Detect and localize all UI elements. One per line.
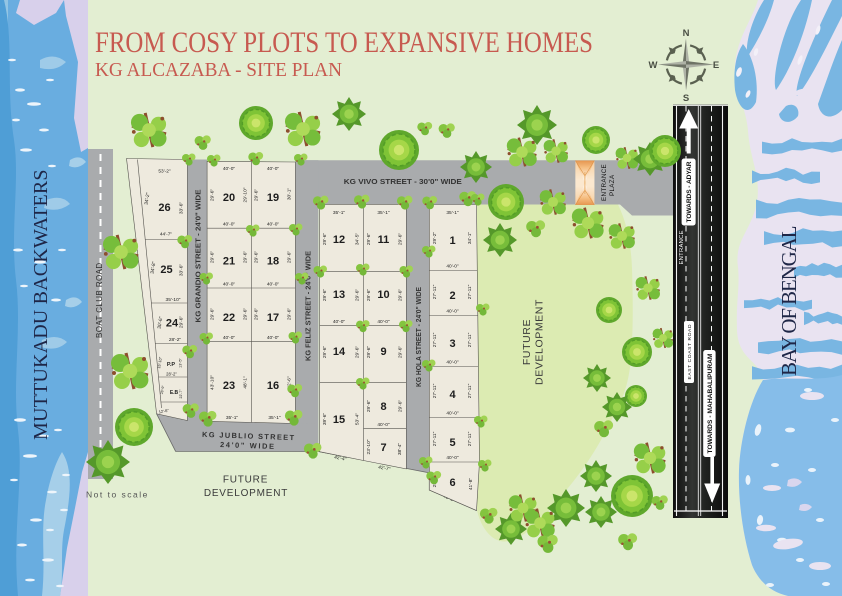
svg-text:40'-0": 40'-0" xyxy=(223,282,236,288)
svg-text:E: E xyxy=(713,60,719,71)
svg-text:13: 13 xyxy=(333,289,345,301)
svg-text:29'-6": 29'-6" xyxy=(254,189,260,202)
svg-text:27'-11": 27'-11" xyxy=(432,431,438,446)
svg-text:27'-11": 27'-11" xyxy=(467,284,473,299)
svg-text:8: 8 xyxy=(380,401,386,413)
svg-text:7: 7 xyxy=(380,442,386,454)
svg-text:23: 23 xyxy=(223,380,235,392)
svg-text:MUTTUKADU BACKWATERS: MUTTUKADU BACKWATERS xyxy=(30,168,52,440)
svg-text:KG ALCAZABA - SITE PLAN: KG ALCAZABA - SITE PLAN xyxy=(95,59,342,81)
svg-text:40'-0": 40'-0" xyxy=(377,319,390,325)
svg-text:41'-8": 41'-8" xyxy=(468,478,474,491)
svg-text:35'-1": 35'-1" xyxy=(268,415,281,421)
svg-text:22: 22 xyxy=(223,312,235,324)
svg-text:29'-6": 29'-6" xyxy=(355,346,361,359)
svg-text:35'-1": 35'-1" xyxy=(377,210,390,216)
svg-text:1: 1 xyxy=(449,235,455,247)
svg-text:4: 4 xyxy=(449,389,456,401)
svg-text:29'-6": 29'-6" xyxy=(322,233,328,246)
svg-text:44'-7": 44'-7" xyxy=(160,232,173,238)
svg-text:53'-4": 53'-4" xyxy=(355,413,361,426)
svg-text:29'-6": 29'-6" xyxy=(254,251,260,264)
svg-text:40'-0": 40'-0" xyxy=(446,455,459,461)
svg-text:29'-6": 29'-6" xyxy=(366,289,372,302)
svg-text:TOWARDS - MAHABALIPURAM: TOWARDS - MAHABALIPURAM xyxy=(707,353,714,454)
svg-text:ENTRANCE: ENTRANCE xyxy=(679,230,685,264)
svg-text:35'-10": 35'-10" xyxy=(166,297,181,303)
svg-text:11: 11 xyxy=(378,234,390,246)
svg-text:22'-7": 22'-7" xyxy=(179,389,183,399)
svg-text:40'-0": 40'-0" xyxy=(223,222,236,228)
svg-text:25: 25 xyxy=(160,264,172,276)
svg-text:P.P: P.P xyxy=(167,362,175,368)
svg-text:26: 26 xyxy=(158,202,170,214)
svg-text:29'-6": 29'-6" xyxy=(179,316,185,329)
svg-text:FROM COSY PLOTS TO EXPANSIVE H: FROM COSY PLOTS TO EXPANSIVE HOMES xyxy=(95,26,593,59)
svg-text:40'-0": 40'-0" xyxy=(446,264,459,270)
svg-text:40'-0": 40'-0" xyxy=(267,335,280,341)
svg-text:40'-0": 40'-0" xyxy=(267,166,280,172)
svg-text:40'-0": 40'-0" xyxy=(333,319,346,325)
svg-text:12: 12 xyxy=(333,234,345,246)
svg-text:38'-4": 38'-4" xyxy=(397,443,403,456)
svg-text:29'-2": 29'-2" xyxy=(432,232,438,245)
svg-text:27'-11": 27'-11" xyxy=(467,431,473,446)
svg-text:PLAZA: PLAZA xyxy=(609,174,616,196)
svg-text:29'-6": 29'-6" xyxy=(355,289,361,302)
svg-text:34'-1": 34'-1" xyxy=(467,232,473,245)
svg-text:29'-6": 29'-6" xyxy=(210,308,216,321)
svg-text:S: S xyxy=(683,93,689,104)
svg-text:48'-1": 48'-1" xyxy=(243,376,249,389)
svg-text:KG GRANDIO STREET - 24'0" WIDE: KG GRANDIO STREET - 24'0" WIDE xyxy=(194,189,203,322)
svg-text:29'-6": 29'-6" xyxy=(210,251,216,264)
svg-text:ENTRANCE: ENTRANCE xyxy=(601,164,608,201)
svg-text:29'-6": 29'-6" xyxy=(254,308,260,321)
svg-text:17: 17 xyxy=(267,312,279,324)
svg-text:29'-6": 29'-6" xyxy=(398,289,404,302)
svg-text:29'-6": 29'-6" xyxy=(210,189,216,202)
svg-text:5: 5 xyxy=(449,437,455,449)
svg-text:35'-1": 35'-1" xyxy=(446,210,459,216)
svg-text:15: 15 xyxy=(333,414,345,426)
svg-text:29'-6": 29'-6" xyxy=(366,346,372,359)
svg-text:29'-6": 29'-6" xyxy=(287,251,293,264)
svg-text:40'-0": 40'-0" xyxy=(446,360,459,366)
svg-text:29'-6": 29'-6" xyxy=(243,308,249,321)
svg-text:KG HOLA STREET - 24'0" WIDE: KG HOLA STREET - 24'0" WIDE xyxy=(414,287,423,387)
svg-text:14: 14 xyxy=(333,346,346,358)
svg-text:40'-0": 40'-0" xyxy=(223,335,236,341)
svg-text:33'-6": 33'-6" xyxy=(179,202,185,215)
svg-text:Not to scale: Not to scale xyxy=(86,490,149,500)
svg-text:27'-11": 27'-11" xyxy=(432,332,438,347)
svg-text:29'-6": 29'-6" xyxy=(322,289,328,302)
svg-text:29'-6": 29'-6" xyxy=(366,233,372,246)
svg-text:E.B: E.B xyxy=(170,390,179,396)
svg-text:23'-10": 23'-10" xyxy=(366,439,372,454)
svg-text:29'-6": 29'-6" xyxy=(398,400,404,413)
svg-text:27'-11": 27'-11" xyxy=(432,383,438,398)
svg-text:27'-11": 27'-11" xyxy=(432,284,438,299)
svg-text:40'-0": 40'-0" xyxy=(377,422,390,428)
svg-text:10: 10 xyxy=(377,289,389,301)
svg-text:29'-10": 29'-10" xyxy=(243,187,249,202)
svg-text:BOAT CLUB ROAD: BOAT CLUB ROAD xyxy=(95,262,104,338)
svg-text:21: 21 xyxy=(223,256,235,268)
svg-text:29'-6": 29'-6" xyxy=(366,400,372,413)
svg-text:29'-6": 29'-6" xyxy=(243,251,249,264)
svg-text:40'-0": 40'-0" xyxy=(223,166,236,172)
svg-text:EAST COAST ROAD: EAST COAST ROAD xyxy=(687,324,693,379)
svg-text:9: 9 xyxy=(380,346,386,358)
svg-text:FUTURE: FUTURE xyxy=(521,319,533,365)
svg-text:30'-1": 30'-1" xyxy=(287,188,293,201)
svg-text:N: N xyxy=(683,28,690,39)
svg-text:33'-6": 33'-6" xyxy=(179,264,185,277)
svg-text:13'-5": 13'-5" xyxy=(179,358,183,368)
svg-text:3: 3 xyxy=(449,338,455,350)
svg-text:29'-6": 29'-6" xyxy=(398,346,404,359)
svg-text:35'-1": 35'-1" xyxy=(333,210,346,216)
svg-text:24'0" WIDE: 24'0" WIDE xyxy=(220,440,274,451)
svg-text:43'-10": 43'-10" xyxy=(210,375,216,390)
svg-text:BAY OF BENGAL: BAY OF BENGAL xyxy=(777,224,801,376)
svg-text:27'-11": 27'-11" xyxy=(467,332,473,347)
svg-text:KG FELIZ STREET - 24'0" WIDE: KG FELIZ STREET - 24'0" WIDE xyxy=(304,251,313,361)
svg-text:FUTURE: FUTURE xyxy=(223,475,268,486)
svg-text:DEVELOPMENT: DEVELOPMENT xyxy=(204,488,288,499)
svg-text:28'-2": 28'-2" xyxy=(169,337,182,343)
svg-text:W: W xyxy=(649,60,658,71)
svg-text:29'-6": 29'-6" xyxy=(322,346,328,359)
svg-text:2: 2 xyxy=(449,290,455,302)
svg-text:DEVELOPMENT: DEVELOPMENT xyxy=(534,299,546,385)
svg-text:34'-5": 34'-5" xyxy=(355,233,361,246)
svg-text:40'-0": 40'-0" xyxy=(446,309,459,315)
svg-text:24: 24 xyxy=(166,318,179,330)
svg-text:35'-1": 35'-1" xyxy=(226,415,239,421)
svg-text:KG VIVO STREET - 30'0" WIDE: KG VIVO STREET - 30'0" WIDE xyxy=(344,177,462,186)
svg-text:28'-2": 28'-2" xyxy=(166,371,177,376)
svg-text:29'-6": 29'-6" xyxy=(398,233,404,246)
svg-text:53'-2": 53'-2" xyxy=(158,169,171,175)
svg-text:29'-6": 29'-6" xyxy=(287,308,293,321)
svg-text:18: 18 xyxy=(267,256,279,268)
svg-text:19: 19 xyxy=(267,192,279,204)
svg-text:20: 20 xyxy=(223,192,235,204)
svg-text:16: 16 xyxy=(267,380,279,392)
svg-text:40'-0": 40'-0" xyxy=(446,411,459,417)
svg-text:39'-6": 39'-6" xyxy=(322,413,328,426)
svg-text:TOWARDS - ADYAR: TOWARDS - ADYAR xyxy=(686,161,693,222)
svg-text:40'-0": 40'-0" xyxy=(267,282,280,288)
svg-text:27'-11": 27'-11" xyxy=(467,383,473,398)
svg-text:6: 6 xyxy=(449,477,455,489)
svg-text:40'-0": 40'-0" xyxy=(267,222,280,228)
